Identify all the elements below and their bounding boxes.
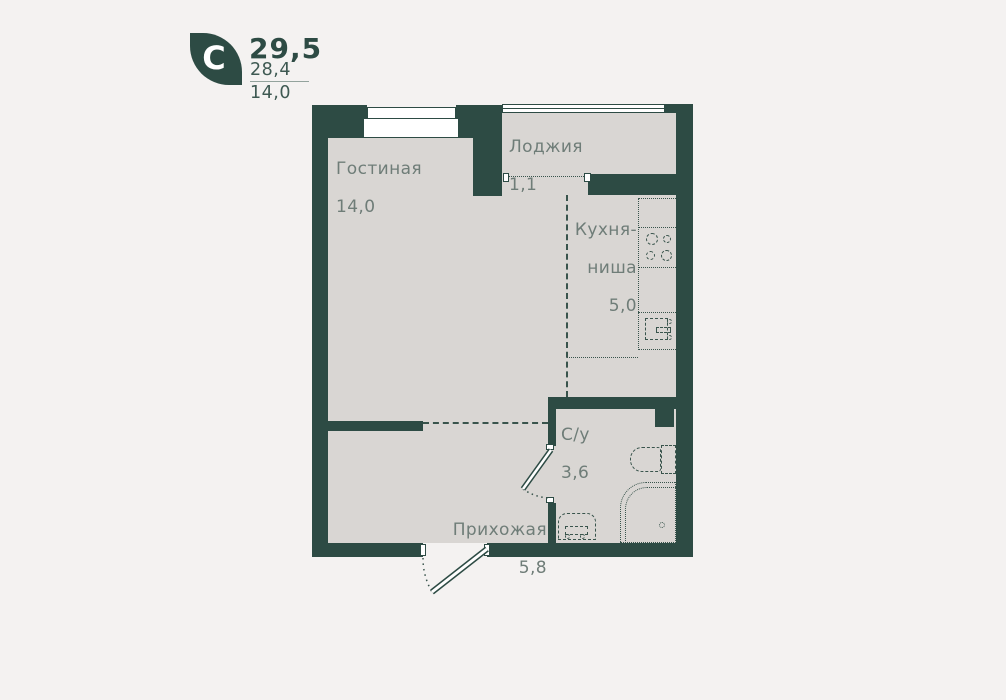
logo-letter: C [202,39,225,77]
loggia-window [502,104,665,113]
wall-living-loggia-divider [473,105,502,196]
kitchen-sink-faucet [656,327,671,333]
shower-tray-inner [625,487,676,543]
loggia-window-mullion [503,108,664,109]
living-room-name: Гостиная [336,160,422,179]
wall-hallway-living [328,421,423,431]
loggia-opening-marker-right [584,173,591,182]
wall-top-left [312,105,367,138]
hallway-zone-line [423,422,548,424]
bathroom-door-swing-arc [523,489,551,498]
kitchen-sink-tap-1 [667,319,672,324]
floorplan-page: C 29,5 28,4 14,0 [0,0,1006,700]
stove-burner-3 [646,251,655,260]
stove-burner-4 [661,250,672,261]
wall-loggia-corner [665,104,693,113]
kitchen-name-line2: ниша [527,259,637,278]
bathroom-door-leaf [523,450,551,489]
logo-leaf-icon: C [190,33,242,85]
counter-divider-1 [638,227,676,228]
living-room-label: Гостиная 14,0 [336,141,422,236]
kitchen-zone-line-horizontal [567,357,638,358]
kitchen-name-line1: Кухня- [527,221,637,240]
hallway-label: Прихожая 5,8 [437,502,547,597]
entrance-door-swing-arc [423,558,432,592]
toilet-bowl [630,447,661,472]
stove-burner-2 [663,235,671,243]
wall-right [676,104,693,557]
hallway-area: 5,8 [437,559,547,578]
area-divider-line [250,81,309,82]
bathroom-door [510,440,560,505]
counter-divider-3 [638,312,676,313]
hallway-name: Прихожая [437,521,547,540]
wall-bathroom-left-lower [548,503,556,543]
washbasin-tap-2 [580,534,585,539]
shower-drain [659,522,665,528]
living-room-area: 14,0 [336,198,422,217]
kitchen-label: Кухня- ниша 5,0 [527,202,637,335]
kitchen-sink-tap-2 [667,335,672,340]
loggia-name: Лоджия [509,138,583,157]
ventilation-duct [655,406,674,427]
wall-left [312,105,328,557]
loggia-area: 1,1 [509,176,583,195]
bathroom-area: 3,6 [561,464,590,483]
bathroom-label: С/у 3,6 [561,407,590,502]
secondary-area-value: 28,4 [250,60,291,80]
kitchen-area: 5,0 [527,297,637,316]
toilet-tank [661,445,676,474]
counter-divider-2 [638,267,676,268]
bathroom-name: С/у [561,426,590,445]
washbasin-tap-1 [565,534,570,539]
loggia-label: Лоджия 1,1 [509,119,583,214]
stove-burner-1 [646,233,658,245]
tertiary-area-value: 14,0 [250,83,291,103]
living-window-inner [363,118,459,138]
wall-loggia-kitchen [588,174,676,195]
